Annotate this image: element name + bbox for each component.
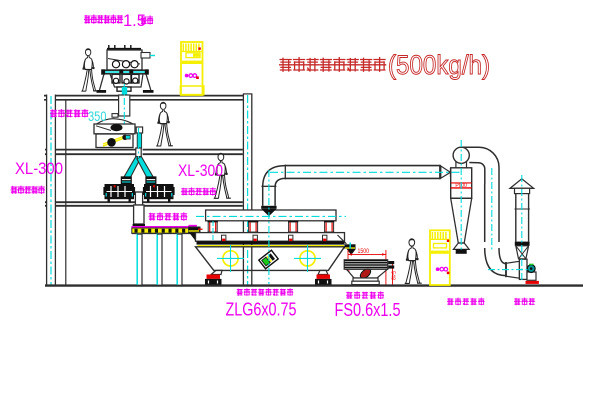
svg-text:FS0.6x1.5: FS0.6x1.5: [335, 300, 401, 320]
svg-text:XL-300: XL-300: [15, 160, 63, 178]
svg-text:XL-300: XL-300: [178, 162, 223, 180]
svg-text:548: 548: [390, 271, 396, 280]
svg-text:(500kg/h): (500kg/h): [388, 50, 490, 80]
svg-text:ZLG6x0.75: ZLG6x0.75: [226, 300, 297, 320]
svg-text:350: 350: [88, 108, 107, 124]
